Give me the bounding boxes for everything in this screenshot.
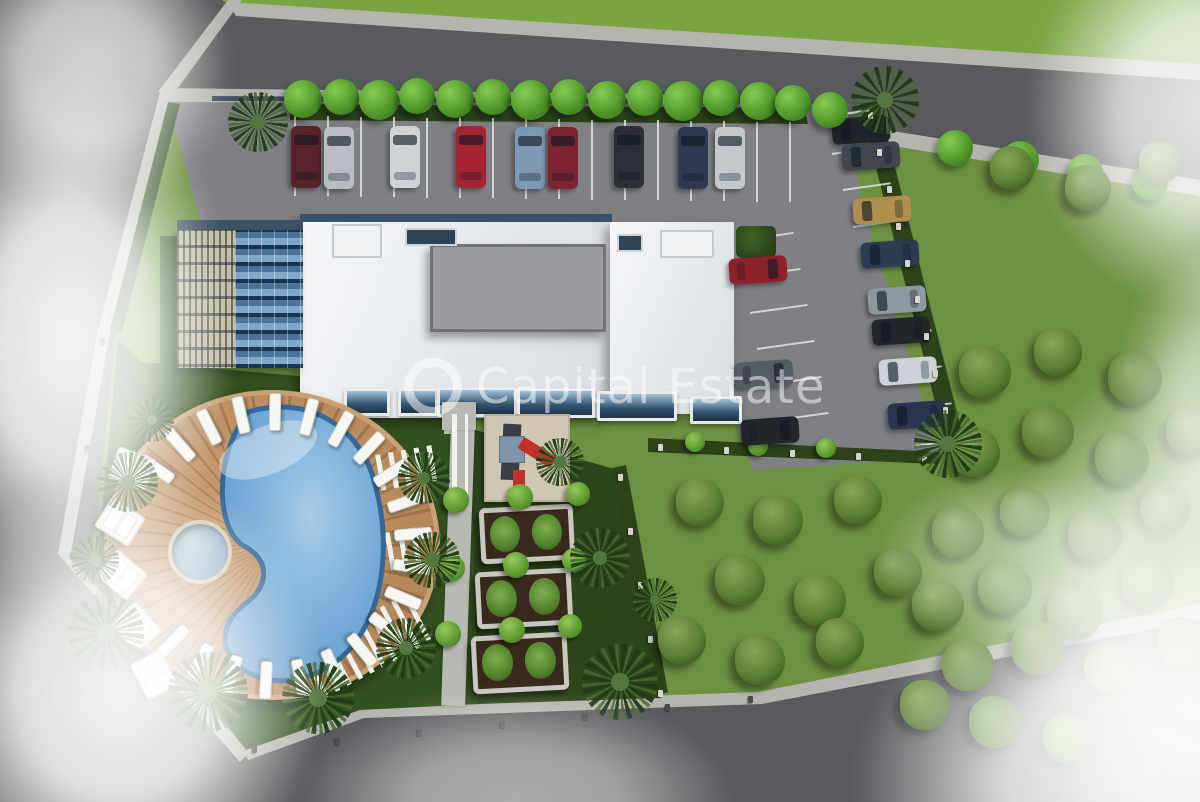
shrub [932, 506, 984, 558]
car-rear-window [519, 173, 541, 181]
shrub [912, 579, 964, 631]
shrub [834, 476, 882, 524]
tree [551, 79, 587, 115]
palm-tree-icon [851, 66, 919, 134]
shrub [1011, 621, 1065, 675]
palm-tree-icon [536, 438, 584, 486]
garden-bush [435, 621, 461, 647]
fence-post [335, 738, 340, 745]
shrub [874, 548, 922, 596]
car-windshield [880, 322, 891, 343]
car-windshield [393, 135, 417, 145]
car-rear-window [719, 173, 741, 181]
shrub [1034, 328, 1082, 376]
garden-bush [499, 617, 525, 643]
parking-stall-line [591, 120, 593, 200]
watermark-ring-icon [404, 358, 462, 416]
fence-post [252, 746, 257, 753]
car-rear-window [913, 321, 922, 340]
sun-lounger [259, 661, 273, 700]
car-windshield [294, 135, 318, 145]
building-bump [332, 224, 382, 258]
shrub [1095, 431, 1149, 485]
shrub [1122, 556, 1174, 608]
watermark: Capital Estate [404, 358, 825, 416]
fence-post [748, 696, 753, 703]
palm-tree-icon [68, 594, 144, 670]
building-darkband [177, 220, 303, 230]
car-windshield [840, 121, 851, 142]
fence-post [648, 636, 653, 643]
parking-stall-line [789, 122, 791, 202]
fence-post [924, 333, 929, 340]
shrub [1108, 351, 1162, 405]
parked-car [548, 127, 578, 189]
fence-post [85, 445, 90, 452]
tree [663, 81, 703, 121]
fence-post [887, 186, 892, 193]
kids-pool [168, 520, 232, 584]
tree [937, 130, 973, 166]
palm-tree-icon [582, 644, 658, 720]
tree [627, 80, 663, 116]
tree [703, 80, 739, 116]
palm-tree-icon [98, 452, 158, 512]
parked-car [515, 127, 545, 189]
parked-car [878, 356, 938, 386]
parking-stall-line [756, 122, 758, 202]
parked-car [715, 127, 745, 189]
palm-tree-icon [71, 536, 119, 584]
car-rear-window [328, 173, 350, 181]
shrub [990, 146, 1034, 190]
parked-car [456, 126, 486, 188]
fence-post [618, 474, 623, 481]
car-windshield [896, 406, 907, 427]
car-rear-window [460, 172, 482, 180]
fence-post [856, 453, 861, 460]
car-rear-window [748, 423, 757, 442]
shrub [1068, 508, 1122, 562]
shrub [1140, 483, 1190, 533]
building-glass [177, 228, 303, 368]
parked-car [324, 127, 354, 189]
car-windshield [617, 135, 641, 145]
car-windshield [718, 136, 742, 146]
car-windshield [887, 362, 898, 383]
fence-post [500, 721, 505, 728]
tree [284, 80, 322, 118]
palm-tree-icon [914, 410, 982, 478]
tree [399, 78, 435, 114]
parking-stall-line [360, 117, 362, 197]
car-windshield [681, 136, 705, 146]
fence-post [915, 296, 920, 303]
fence-post [583, 713, 588, 720]
building-bump [660, 230, 714, 258]
shrub [816, 618, 864, 666]
car-windshield [861, 201, 872, 222]
shrub [1157, 617, 1200, 667]
fence-post [417, 729, 422, 736]
shrub [676, 478, 724, 526]
shrub [1000, 487, 1050, 537]
tree [588, 81, 626, 119]
car-rear-window [618, 172, 640, 180]
sun-lounger [269, 393, 282, 431]
car-rear-window [920, 361, 929, 380]
tree [323, 79, 359, 115]
palm-tree-icon [404, 532, 460, 588]
parked-car [871, 316, 931, 346]
car-windshield [327, 136, 351, 146]
garden-bush [503, 552, 529, 578]
garden-bush [566, 482, 590, 506]
shrub [959, 346, 1011, 398]
building-darkband [300, 214, 612, 222]
shrub [969, 696, 1021, 748]
fence-post [790, 450, 795, 457]
fence-post [724, 447, 729, 454]
car-windshield [850, 147, 861, 168]
tree [511, 80, 551, 120]
shrub [1139, 141, 1181, 183]
shrub [715, 555, 765, 605]
building-grayroof [430, 244, 606, 332]
car-windshield [459, 135, 483, 145]
tree [740, 82, 778, 120]
parked-car [728, 255, 788, 285]
shrub [942, 639, 994, 691]
fence-post [100, 338, 105, 345]
fence-post [628, 528, 633, 535]
car-rear-window [394, 172, 416, 180]
parked-car [614, 126, 644, 188]
palm-tree-icon [282, 662, 354, 734]
fence-post [665, 704, 670, 711]
fence-post [658, 690, 663, 697]
parked-car [860, 239, 920, 269]
garden-bush [443, 487, 469, 513]
shrub [658, 616, 706, 664]
shrub [753, 495, 803, 545]
shrub [1084, 642, 1136, 694]
parked-car [841, 141, 901, 171]
parked-car [740, 416, 800, 446]
shrub [735, 635, 785, 685]
shrub [1043, 713, 1093, 763]
fence-post [933, 370, 938, 377]
car-windshield [551, 136, 575, 146]
parked-car [390, 126, 420, 188]
tree [475, 79, 511, 115]
shrub [978, 561, 1032, 615]
fence-post [905, 260, 910, 267]
building-sky [617, 234, 643, 252]
tree [359, 80, 399, 120]
watermark-text: Capital Estate [476, 359, 825, 415]
car-windshield [869, 245, 880, 266]
palm-tree-icon [130, 398, 174, 442]
tree [812, 92, 848, 128]
car-windshield [518, 136, 542, 146]
palm-tree-icon [376, 618, 436, 678]
palm-tree-icon [398, 452, 450, 504]
palm-tree-icon [633, 578, 677, 622]
fence-post [896, 223, 901, 230]
garden-bush [558, 614, 582, 638]
car-windshield [779, 420, 790, 441]
garden-bush [685, 432, 705, 452]
fence-post [658, 444, 663, 451]
stepping-walkway [452, 414, 468, 498]
palm-tree-icon [570, 528, 630, 588]
car-rear-window [682, 173, 704, 181]
car-rear-window [295, 172, 317, 180]
garden-bed [479, 504, 576, 565]
parked-car [678, 127, 708, 189]
palm-tree-icon [168, 652, 248, 732]
site-plan-render: Capital Estate [0, 0, 1200, 802]
building-hedge [736, 226, 776, 258]
building-sky [405, 228, 457, 246]
car-rear-window [894, 200, 903, 219]
parked-car [852, 195, 912, 225]
garden-bush [816, 438, 836, 458]
shrub [1065, 165, 1111, 211]
tree [775, 85, 811, 121]
shrub [900, 680, 950, 730]
car-rear-window [736, 262, 745, 281]
parking-stall-line [492, 118, 494, 198]
garden-bed [471, 632, 570, 695]
parking-stall-line [426, 118, 428, 198]
garden-bush [507, 484, 533, 510]
car-windshield [876, 291, 887, 312]
fence-post [877, 149, 882, 156]
parking-stall-line [657, 120, 659, 200]
car-rear-window [883, 146, 892, 165]
tree [436, 80, 474, 118]
palm-tree-icon [228, 92, 288, 152]
parked-car [291, 126, 321, 188]
car-rear-window [552, 173, 574, 181]
shrub [1022, 406, 1074, 458]
car-windshield [767, 259, 778, 280]
